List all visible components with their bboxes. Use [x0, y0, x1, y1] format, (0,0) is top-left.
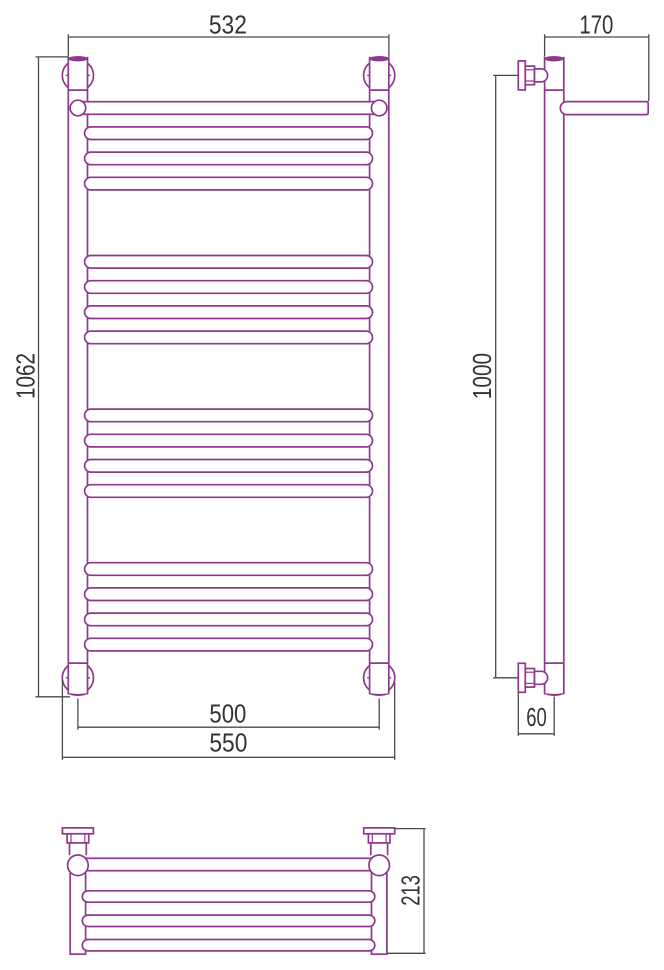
svg-text:213: 213: [396, 875, 426, 906]
svg-text:550: 550: [209, 728, 247, 758]
svg-text:1000: 1000: [467, 353, 497, 399]
svg-text:532: 532: [209, 10, 247, 40]
svg-text:60: 60: [526, 702, 547, 732]
svg-text:1062: 1062: [11, 353, 41, 399]
svg-text:170: 170: [579, 10, 613, 40]
svg-text:500: 500: [209, 698, 246, 728]
